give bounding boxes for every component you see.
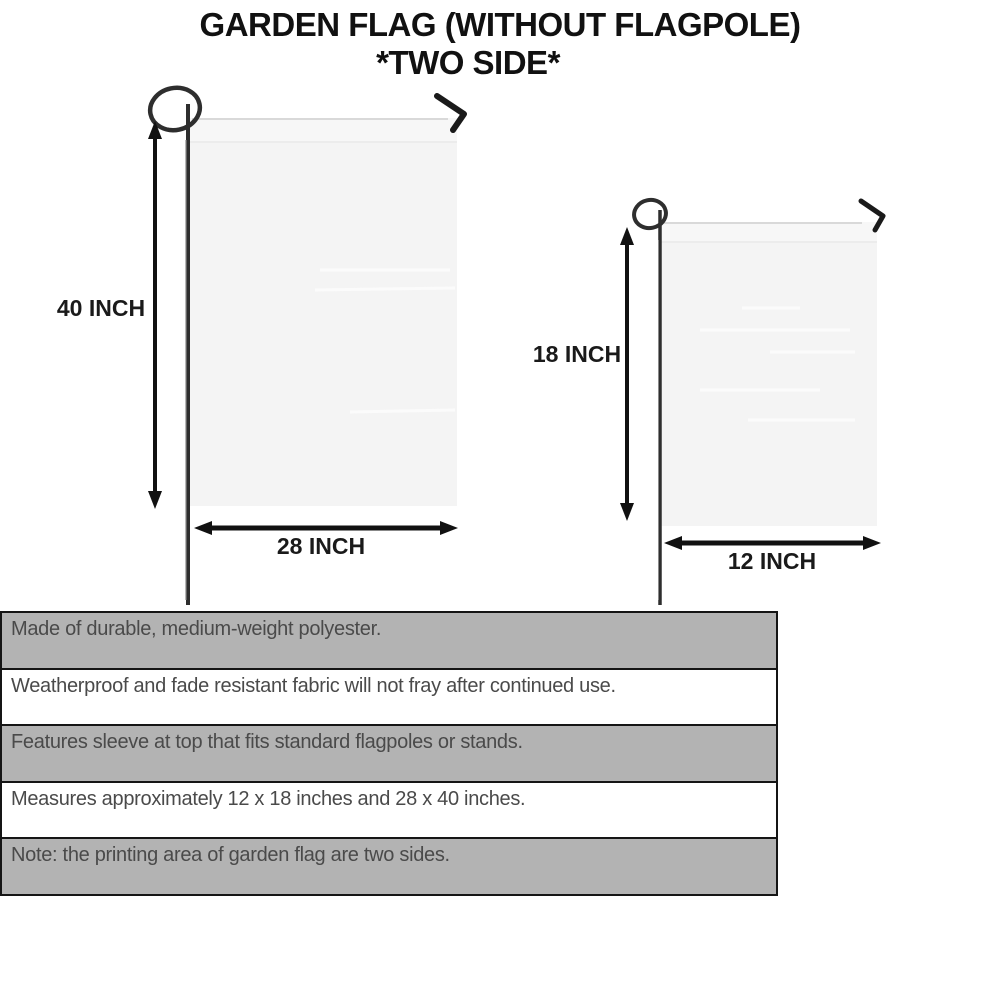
small-height-arrow [620,227,634,521]
small-flag-fabric [661,222,877,526]
large-flag-sleeve [190,118,457,142]
large-height-arrow [148,121,162,509]
feature-row-sleeve: Features sleeve at top that fits standar… [2,724,776,781]
large-height-label: 40 INCH [57,295,145,321]
small-width-label: 12 INCH [728,548,816,574]
feature-row-measures: Measures approximately 12 x 18 inches an… [2,781,776,838]
small-height-label: 18 INCH [533,341,621,367]
small-flag-group: 18 INCH 12 INCH [533,197,883,605]
feature-row-note: Note: the printing area of garden flag a… [2,837,776,894]
feature-row-weatherproof: Weatherproof and fade resistant fabric w… [2,668,776,725]
large-flag-fabric [190,118,457,506]
flag-dimension-diagram: 40 INCH 28 INCH [0,0,1000,610]
large-flag-group: 40 INCH 28 INCH [57,83,464,605]
garden-flag-size-chart: GARDEN FLAG (WITHOUT FLAGPOLE) *TWO SIDE… [0,0,1000,1000]
features-table: Made of durable, medium-weight polyester… [0,611,778,896]
small-flag-sleeve [661,222,877,242]
feature-row-material: Made of durable, medium-weight polyester… [2,613,776,668]
large-width-label: 28 INCH [277,533,365,559]
